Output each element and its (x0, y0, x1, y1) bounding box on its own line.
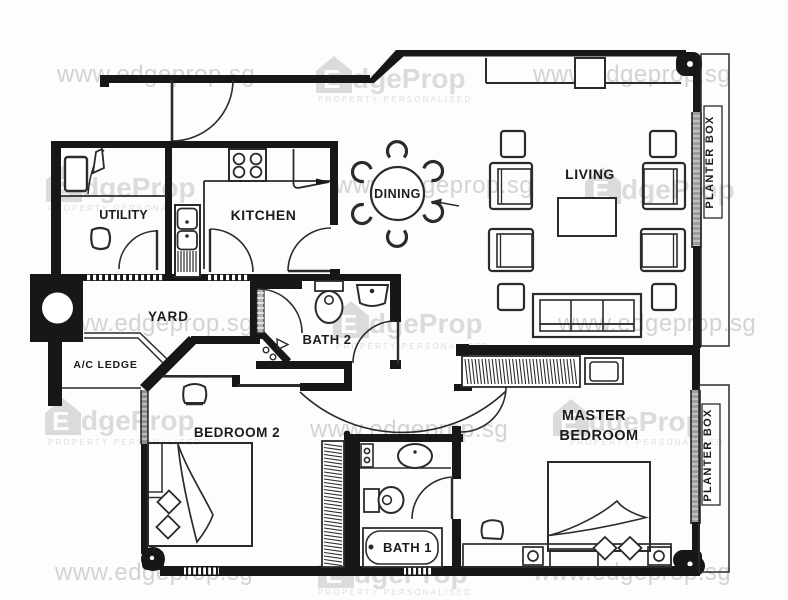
svg-text:A/C LEDGE: A/C LEDGE (73, 359, 137, 371)
svg-text:PROPERTY PERSONALISED: PROPERTY PERSONALISED (318, 588, 472, 597)
svg-text:YARD: YARD (148, 309, 189, 324)
svg-text:LIVING: LIVING (565, 166, 615, 182)
svg-text:MASTER: MASTER (562, 408, 626, 424)
svg-text:PLANTER BOX: PLANTER BOX (704, 115, 716, 208)
svg-text:E: E (52, 406, 69, 436)
svg-text:UTILITY: UTILITY (99, 208, 148, 222)
svg-text:KITCHEN: KITCHEN (231, 207, 297, 223)
svg-text:dgeProp: dgeProp (369, 308, 483, 339)
svg-text:DINING: DINING (374, 187, 421, 201)
svg-text:www.edgeprop.sg: www.edgeprop.sg (334, 172, 533, 199)
svg-text:PROPERTY PERSONALISED: PROPERTY PERSONALISED (318, 95, 472, 104)
svg-text:BATH 1: BATH 1 (383, 540, 432, 555)
svg-text:BEDROOM: BEDROOM (559, 428, 638, 444)
svg-text:BATH 2: BATH 2 (303, 332, 352, 347)
svg-text:dgeProp: dgeProp (82, 172, 196, 203)
svg-text:PLANTER BOX: PLANTER BOX (702, 408, 714, 501)
svg-text:BEDROOM 2: BEDROOM 2 (194, 425, 280, 440)
svg-text:dgeProp: dgeProp (81, 405, 195, 436)
svg-text:www.edgeprop.sg: www.edgeprop.sg (56, 61, 255, 88)
